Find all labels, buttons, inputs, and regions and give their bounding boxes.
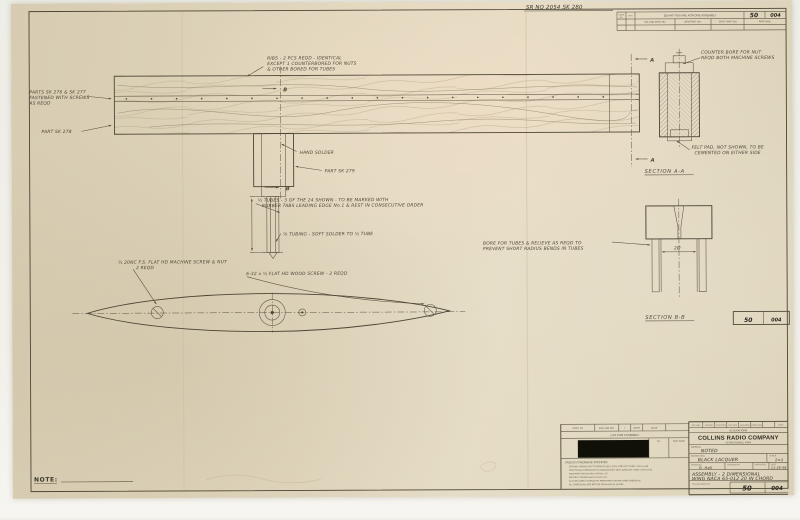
tb-tolerance-line: BROKEN CORNERS AND FILLETS 1/64 (569, 476, 608, 479)
table-per-col: PER (628, 15, 633, 17)
tb-tolerance-line: ALL DIMENSIONS ARE BEFORE FINISH AND IN … (569, 483, 624, 486)
center-block-and-tube (249, 133, 294, 258)
tb-tolerance-line: FRACTIONAL DIMENSIONS TOLERANCE HELD WIT… (569, 469, 653, 472)
bore-note: BORE FOR TUBES & RELIEVE AS REQD TO (483, 240, 582, 246)
table-col1: COLLINS PART NO. (644, 21, 666, 24)
tb-approval-cell: DFTSMN (692, 425, 701, 427)
table-header: QUANTITIES ARE FOR ONE ASSEMBLY (664, 13, 716, 17)
table-col3: GOVT PART NO. (719, 20, 738, 23)
material-value: NOTED (701, 448, 718, 454)
section-aa-label: SECTION A-A (645, 169, 685, 175)
approved-label: APPROVED (755, 463, 767, 466)
drawing-sheet: SR NO 2054 SK 280 MARK NO. PER QUANTITIE… (11, 0, 794, 498)
part-number-left: 50 (742, 484, 752, 492)
title-block: COPY TO FOLLOW SHT 7 NOTE DATE LIST FOR … (561, 421, 788, 495)
sr-number: SR NO 2054 SK 280 (524, 5, 613, 11)
felt-pad-note: CEMENTED ON EITHER SIDE (695, 150, 761, 156)
redacted-block (578, 440, 649, 458)
section-bb-dimension: 2Ø (674, 244, 681, 251)
counter-bore-note: COUNTER BORE FOR NUT (701, 49, 761, 55)
section-a-marker: A (649, 58, 654, 64)
tubing-note: ⅛ TUBING - SOFT SOLDER TO ½ TUBE (283, 230, 373, 237)
tb-tolerance-line: ACCUMULATED TOLERANCES PERMITTED FOR THE… (569, 479, 641, 482)
parts-276-note: PARTS SK 276 & SK 277 (29, 89, 86, 95)
tb-col-no: NO. (657, 441, 661, 443)
parts-276-note: AS REQD (28, 101, 51, 107)
ribs-note: RIBS - 2 PCS REQD - IDENTICAL (267, 55, 342, 61)
tb-note-cell: NOTE (633, 427, 640, 430)
section-a-marker: A (650, 158, 655, 164)
tubes-note: RUBBER TABS LEADING EDGE No.1 & REST IN … (262, 202, 424, 209)
table-col2: MFG PART NO. (684, 20, 701, 23)
tubes-note: ½ TUBES - 3 OF THE 24 SHOWN - TO BE MARK… (258, 196, 389, 204)
mid-part-number-box: 50 004 (733, 311, 789, 324)
machine-screw-note: 2 REQD (136, 265, 154, 271)
airfoil-plan-view (72, 292, 465, 334)
machine-screw-note: ¼ 20NC F.S. FLAT HD MACHINE SCREW & NUT (118, 259, 227, 265)
tb-copy-to: COPY TO (572, 427, 583, 430)
ribs-note: & OTHER BORED FOR TUBES (267, 66, 335, 72)
drawing-title-line2: WING NACA 65-012 20 IN CHORD (692, 476, 773, 482)
table-partnos-label: PART NOS. (759, 20, 772, 23)
parts-276-note: FASTENED WITH SCREWS (29, 95, 89, 101)
section-bb-detail: 2Ø SECTION B-B (645, 199, 713, 321)
tb-approval-cell: CHECKER (716, 425, 726, 427)
table-mark-col2: NO. (620, 17, 624, 19)
date-value: 11-26-58 (771, 466, 787, 470)
section-aa-detail: SECTION A-A (644, 49, 700, 175)
drawn-by-signature: G. Hall (699, 466, 712, 470)
note-label: NOTE: (34, 477, 58, 484)
section-b-marker: B (286, 186, 290, 192)
section-b-marker: B (283, 87, 287, 93)
counter-bore-note: REQD BOTH MACHINE SCREWS (701, 55, 774, 61)
tb-approval-cell: DES APP (728, 424, 737, 427)
hand-solder-note: HAND SOLDER (300, 150, 334, 156)
table-part-left: 50 (750, 12, 758, 19)
midbox-part-left: 50 (744, 317, 752, 324)
wood-screw-note: 6-32 x ½ FLAT HD WOOD SCREW - 2 REQD (246, 270, 348, 277)
part-number-right: 004 (771, 486, 783, 492)
scale-value: 1=1 (775, 457, 784, 462)
part-279-note: PART SK 279 (325, 168, 355, 174)
ribs-note: EXCEPT 1 COUNTERBORED FOR NUTS (267, 61, 356, 67)
parts-quantity-table: MARK NO. PER QUANTITIES ARE FOR ONE ASSE… (617, 11, 786, 30)
tb-tolerance-line: DECIMAL DIMENSIONS TOLERANCE HELD WITH S… (569, 465, 649, 468)
sr-number-text: SR NO 2054 SK 280 (526, 5, 583, 11)
bottom-note: NOTE: (34, 476, 133, 483)
tb-approval-cell: TRACER (705, 424, 714, 427)
felt-pad-note: FELT PAD, NOT SHOWN, TO BE (692, 144, 764, 150)
company-city: CEDAR RAPIDS, IOWA (726, 441, 752, 444)
tb-follow-sht: FOLLOW SHT (599, 427, 615, 430)
tb-tolerance-line: MACHINED ANGLES HELD WITHIN ±1/2° (569, 472, 609, 475)
tb-alterations: ALTERATIONS (729, 428, 747, 432)
protection-value: BLACK LACQUER (698, 457, 738, 463)
checked-by-label: CHECKED BY (727, 464, 741, 466)
tb-tolerance-heading: UNLESS OTHERWISE SPECIFIED (565, 460, 608, 464)
tb-list-for-assembly: LIST FOR ASSEMBLY (610, 433, 639, 437)
section-bb-label: SECTION B-B (645, 315, 685, 321)
tb-sheet-num: 7 (624, 427, 626, 430)
pencil-scribbles (206, 462, 496, 483)
wing-plank-drawing (114, 74, 639, 134)
midbox-part-right: 004 (771, 317, 782, 323)
tb-col-part-name: PART NAME (673, 440, 686, 443)
part-278-note: PART SK 278 (41, 129, 71, 135)
collins-part-label: COLLINS PART NO. (692, 483, 711, 486)
bore-note: PREVENT SHORT RADIUS BENDS IN TUBES (483, 246, 584, 252)
drawing-canvas: SR NO 2054 SK 280 MARK NO. PER QUANTITIE… (0, 0, 800, 520)
table-part-right: 004 (770, 13, 781, 19)
tb-approval-cell: MFG ENG (740, 425, 750, 427)
tb-approval-cell: DATE (778, 424, 784, 427)
tb-approval-cell: PROJ ENG (752, 425, 763, 427)
tb-date-cell: DATE (651, 427, 658, 430)
